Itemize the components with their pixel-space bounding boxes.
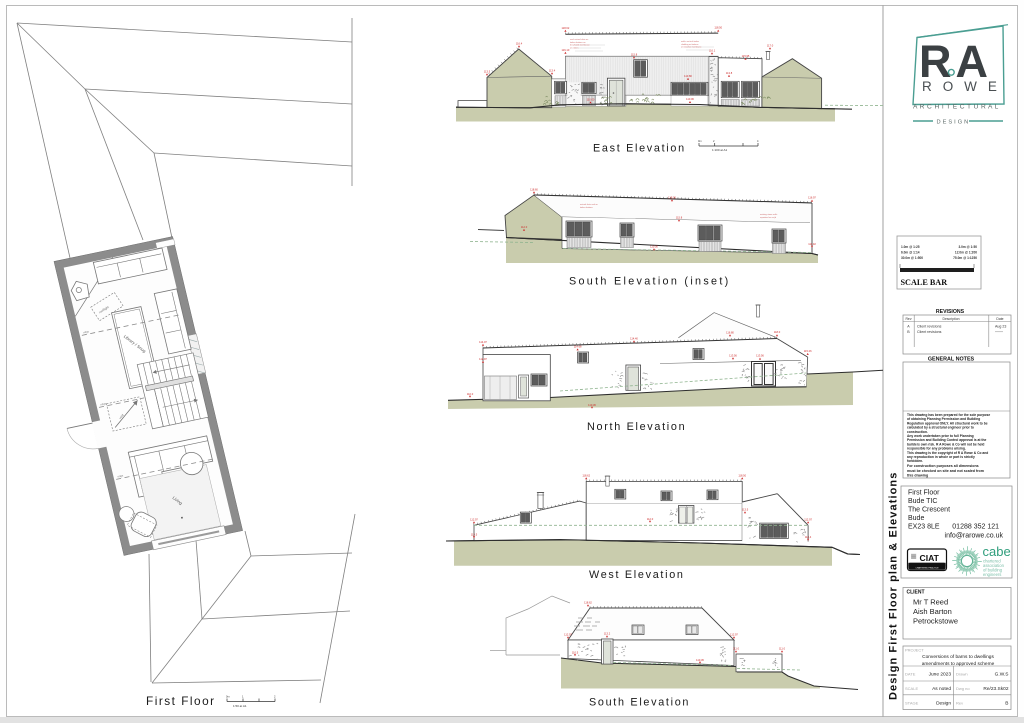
svg-text:113.80: 113.80	[684, 74, 692, 78]
svg-text:110.36: 110.36	[588, 403, 596, 407]
svg-text:75.0m @ 1:1250: 75.0m @ 1:1250	[953, 256, 977, 260]
svg-text:112.0: 112.0	[521, 225, 528, 229]
svg-text:115.8: 115.8	[676, 215, 683, 219]
svg-text:110.5: 110.5	[471, 532, 478, 536]
svg-text:01288 352 121: 01288 352 121	[952, 524, 999, 531]
svg-text:First Floor: First Floor	[146, 694, 216, 708]
svg-text:DATE: DATE	[905, 672, 916, 677]
svg-text:113.5: 113.5	[742, 507, 749, 511]
svg-text:on breather membrane: on breather membrane	[681, 46, 702, 49]
svg-text:115.8: 115.8	[631, 52, 638, 56]
svg-text:1.0m @ 1:25: 1.0m @ 1:25	[901, 245, 920, 249]
svg-text:118.0: 118.0	[774, 330, 781, 334]
svg-text:Mr T Reed: Mr T Reed	[913, 598, 948, 607]
svg-text:0m: 0m	[226, 695, 230, 699]
svg-text:112.97: 112.97	[479, 357, 487, 361]
svg-text:info@rarowe.co.uk: info@rarowe.co.uk	[945, 533, 1004, 540]
svg-text:North Elevation: North Elevation	[587, 421, 686, 433]
svg-text:113.8: 113.8	[726, 71, 733, 75]
svg-text:111.0: 111.0	[779, 646, 786, 650]
svg-text:As noted: As noted	[932, 686, 951, 692]
svg-text:this drawing: this drawing	[907, 474, 928, 478]
svg-text:timber battens: timber battens	[580, 206, 593, 209]
svg-text:116.10: 116.10	[562, 48, 570, 52]
svg-text:110.4: 110.4	[805, 535, 812, 539]
svg-text:East Elevation: East Elevation	[593, 143, 686, 155]
svg-text:EX23 8LE: EX23 8LE	[908, 524, 940, 531]
svg-text:Dwg no: Dwg no	[956, 686, 970, 691]
svg-text:STAGE: STAGE	[905, 701, 919, 706]
svg-text:existing stone walls: existing stone walls	[760, 213, 777, 216]
svg-text:116.1: 116.1	[709, 48, 716, 52]
svg-text:114.68: 114.68	[574, 344, 582, 348]
svg-text:The Crescent: The Crescent	[908, 507, 950, 514]
svg-text:110.00: 110.00	[587, 97, 595, 101]
svg-text:118.62: 118.62	[582, 473, 590, 477]
svg-text:113.56: 113.56	[756, 354, 764, 358]
svg-text:Conversions of barns to dwelli: Conversions of barns to dwellings	[922, 654, 994, 660]
svg-text:engineers: engineers	[983, 572, 1001, 577]
svg-text:110.00: 110.00	[650, 244, 658, 248]
svg-text:natural slate roof on: natural slate roof on	[580, 203, 598, 206]
svg-text:Rev: Rev	[905, 317, 911, 321]
svg-text:B: B	[1005, 701, 1008, 707]
svg-text:Drawn: Drawn	[956, 672, 968, 677]
svg-text:118.00: 118.00	[668, 195, 676, 199]
svg-text:113.2: 113.2	[604, 631, 611, 635]
svg-text:cabe: cabe	[983, 544, 1011, 559]
svg-text:118.62: 118.62	[562, 26, 570, 30]
svg-text:SCALE: SCALE	[905, 686, 918, 691]
svg-text:For construction purposes all: For construction purposes all dimensions	[907, 464, 979, 468]
svg-text:must be checked on site and no: must be checked on site and not scaled f…	[907, 469, 984, 473]
svg-text:G.W.S: G.W.S	[995, 672, 1009, 678]
svg-text:cladding on battens: cladding on battens	[681, 43, 698, 46]
svg-text:3.0m @ 1:50: 3.0m @ 1:50	[958, 245, 977, 249]
svg-text:Aug 23: Aug 23	[995, 325, 1006, 329]
svg-text:115.95: 115.95	[742, 54, 750, 58]
svg-text:CIAT: CIAT	[920, 553, 940, 563]
svg-text:amendments to approved scheme: amendments to approved scheme	[922, 661, 995, 667]
svg-text:115.26: 115.26	[804, 349, 812, 353]
svg-text:South Elevation: South Elevation	[589, 697, 690, 709]
svg-text:GENERAL NOTES: GENERAL NOTES	[928, 357, 975, 363]
svg-text:110.5: 110.5	[572, 650, 579, 654]
svg-text:116.4: 116.4	[516, 41, 523, 45]
svg-text:Re/23.Sk02: Re/23.Sk02	[983, 686, 1008, 692]
svg-text:30.0m @ 1:500: 30.0m @ 1:500	[901, 256, 923, 260]
svg-text:West Elevation: West Elevation	[589, 569, 685, 581]
svg-text:113.56: 113.56	[729, 353, 737, 357]
svg-text:June 2023: June 2023	[929, 672, 952, 678]
svg-text:Description: Description	[943, 317, 960, 321]
svg-text:Client revisions: Client revisions	[917, 325, 942, 329]
svg-text:forbidden.: forbidden.	[907, 459, 923, 463]
svg-text:on rafters: on rafters	[570, 46, 578, 49]
svg-text:112.97: 112.97	[804, 517, 812, 521]
svg-text:Rev: Rev	[956, 701, 963, 706]
svg-text:111.0: 111.0	[733, 646, 740, 650]
svg-text:111.02: 111.02	[808, 242, 816, 246]
svg-text:117.0: 117.0	[767, 43, 774, 47]
svg-text:118.60: 118.60	[530, 187, 538, 191]
svg-text:timber battens on: timber battens on	[570, 41, 585, 44]
svg-text:113.4: 113.4	[549, 68, 556, 72]
svg-text:113.5: 113.5	[484, 69, 491, 73]
svg-text:PROJECT: PROJECT	[905, 648, 924, 653]
svg-text:118.50: 118.50	[714, 26, 722, 30]
svg-text:SCALE BAR: SCALE BAR	[901, 278, 948, 287]
svg-text:A R C H I T E C T U R A L: A R C H I T E C T U R A L	[913, 104, 999, 111]
svg-text:0m: 0m	[698, 139, 702, 143]
svg-text:118.62: 118.62	[584, 600, 592, 604]
svg-text:Bude: Bude	[908, 515, 924, 522]
svg-text:1:50 at A1: 1:50 at A1	[233, 704, 247, 708]
svg-text:118.50: 118.50	[738, 473, 746, 477]
svg-text:REVISIONS: REVISIONS	[936, 309, 965, 315]
svg-text:Date: Date	[996, 317, 1003, 321]
svg-text:112.97: 112.97	[470, 517, 478, 521]
svg-text:114.07: 114.07	[479, 340, 487, 344]
svg-text:Petrockstowe: Petrockstowe	[913, 617, 958, 626]
svg-text:116.97: 116.97	[808, 196, 816, 200]
svg-text:Design: Design	[936, 701, 951, 707]
svg-text:Design First Floor plan & Elev: Design First Floor plan & Elevations	[888, 472, 900, 700]
svg-text:D E S I G N: D E S I G N	[937, 120, 969, 126]
svg-text:110.0: 110.0	[467, 392, 474, 396]
svg-text:110.06: 110.06	[686, 97, 694, 101]
svg-text:Client revisions: Client revisions	[917, 330, 942, 334]
svg-text:First Floor: First Floor	[908, 490, 940, 497]
svg-text:1:100 at A1: 1:100 at A1	[712, 148, 728, 152]
svg-text:112.0: 112.0	[647, 517, 654, 521]
svg-text:Aish Barton: Aish Barton	[913, 607, 952, 616]
svg-text:repointed as req'd: repointed as req'd	[760, 216, 776, 219]
svg-text:12.0m @ 1:200: 12.0m @ 1:200	[955, 251, 977, 255]
svg-text:R O W E: R O W E	[922, 79, 1000, 94]
svg-text:Bude TIC: Bude TIC	[908, 498, 937, 505]
svg-text:roof: natural slate on: roof: natural slate on	[570, 38, 588, 41]
svg-text:walls: vertical timber: walls: vertical timber	[681, 40, 699, 43]
svg-text:112.97: 112.97	[564, 632, 572, 636]
svg-text:CHARTERED PRACTICE: CHARTERED PRACTICE	[915, 567, 939, 570]
svg-text:112.97: 112.97	[730, 632, 738, 636]
svg-text:6.0m @ 1:14: 6.0m @ 1:14	[901, 251, 920, 255]
svg-text:110.36: 110.36	[696, 658, 704, 662]
svg-text:South Elevation (inset): South Elevation (inset)	[569, 276, 731, 288]
svg-text:breathable membrane: breathable membrane	[570, 44, 590, 47]
svg-text:CLIENT: CLIENT	[907, 590, 925, 596]
svg-text:114.40: 114.40	[630, 336, 638, 340]
svg-text:116.80: 116.80	[726, 330, 734, 334]
